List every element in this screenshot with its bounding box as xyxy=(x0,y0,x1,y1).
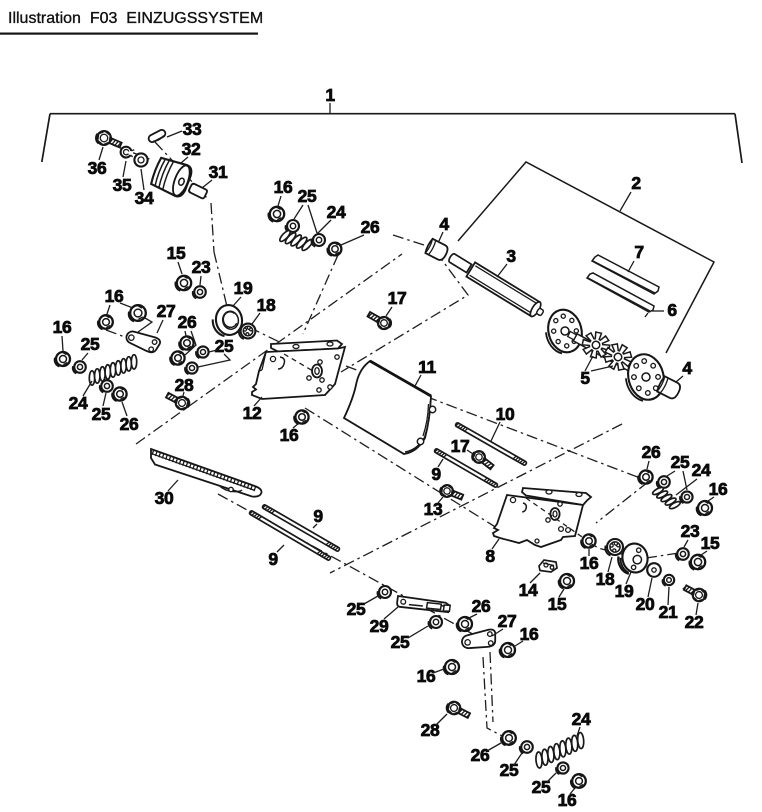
svg-text:16: 16 xyxy=(417,666,436,686)
svg-text:26: 26 xyxy=(120,414,139,434)
svg-text:17: 17 xyxy=(451,436,470,456)
svg-text:4: 4 xyxy=(682,358,692,378)
svg-text:30: 30 xyxy=(155,488,174,508)
svg-text:4: 4 xyxy=(439,214,449,234)
svg-text:19: 19 xyxy=(234,278,253,298)
svg-text:11: 11 xyxy=(418,357,436,377)
svg-text:12: 12 xyxy=(243,403,262,423)
svg-text:23: 23 xyxy=(681,521,700,541)
svg-text:23: 23 xyxy=(192,257,211,277)
svg-text:26: 26 xyxy=(642,442,661,462)
svg-text:24: 24 xyxy=(327,202,346,222)
svg-text:7: 7 xyxy=(634,242,643,262)
svg-text:32: 32 xyxy=(182,139,201,159)
svg-text:9: 9 xyxy=(313,506,323,526)
svg-text:24: 24 xyxy=(572,709,591,729)
svg-text:36: 36 xyxy=(88,158,107,178)
svg-text:13: 13 xyxy=(424,499,443,519)
svg-text:27: 27 xyxy=(498,611,517,631)
svg-text:1: 1 xyxy=(325,85,335,105)
svg-text:3: 3 xyxy=(506,246,516,266)
svg-text:18: 18 xyxy=(596,569,615,589)
svg-text:17: 17 xyxy=(388,288,407,308)
svg-text:15: 15 xyxy=(701,533,720,553)
svg-text:18: 18 xyxy=(257,295,276,315)
svg-text:15: 15 xyxy=(167,243,186,263)
svg-text:16: 16 xyxy=(280,425,299,445)
svg-text:25: 25 xyxy=(391,632,410,652)
svg-text:26: 26 xyxy=(472,596,491,616)
svg-text:25: 25 xyxy=(215,336,234,356)
svg-text:26: 26 xyxy=(471,745,490,765)
svg-text:35: 35 xyxy=(113,175,132,195)
svg-text:27: 27 xyxy=(157,301,176,321)
svg-text:28: 28 xyxy=(175,375,194,395)
svg-text:25: 25 xyxy=(347,599,366,619)
svg-text:22: 22 xyxy=(685,612,704,632)
svg-text:25: 25 xyxy=(81,334,100,354)
svg-text:34: 34 xyxy=(135,188,154,208)
svg-text:19: 19 xyxy=(615,581,634,601)
svg-text:Illustration F03 EINZUGSSYST: Illustration F03 EINZUGSSYSTEM xyxy=(8,10,263,27)
svg-text:9: 9 xyxy=(268,549,278,569)
svg-text:24: 24 xyxy=(692,460,711,480)
svg-text:26: 26 xyxy=(178,312,197,332)
svg-text:16: 16 xyxy=(558,790,577,810)
svg-text:29: 29 xyxy=(370,616,389,636)
svg-text:25: 25 xyxy=(298,186,317,206)
svg-text:10: 10 xyxy=(496,404,515,424)
svg-text:16: 16 xyxy=(274,177,293,197)
svg-text:31: 31 xyxy=(209,162,228,182)
svg-text:25: 25 xyxy=(671,452,690,472)
svg-text:16: 16 xyxy=(709,479,728,499)
svg-text:24: 24 xyxy=(69,393,88,413)
svg-text:33: 33 xyxy=(183,119,202,139)
svg-text:26: 26 xyxy=(361,217,380,237)
svg-text:9: 9 xyxy=(431,464,441,484)
svg-text:15: 15 xyxy=(548,594,567,614)
svg-text:16: 16 xyxy=(53,317,72,337)
svg-text:20: 20 xyxy=(636,594,655,614)
svg-text:2: 2 xyxy=(631,173,641,193)
svg-text:14: 14 xyxy=(519,580,538,600)
svg-text:6: 6 xyxy=(667,300,677,320)
svg-text:8: 8 xyxy=(485,546,495,566)
svg-text:25: 25 xyxy=(92,404,111,424)
